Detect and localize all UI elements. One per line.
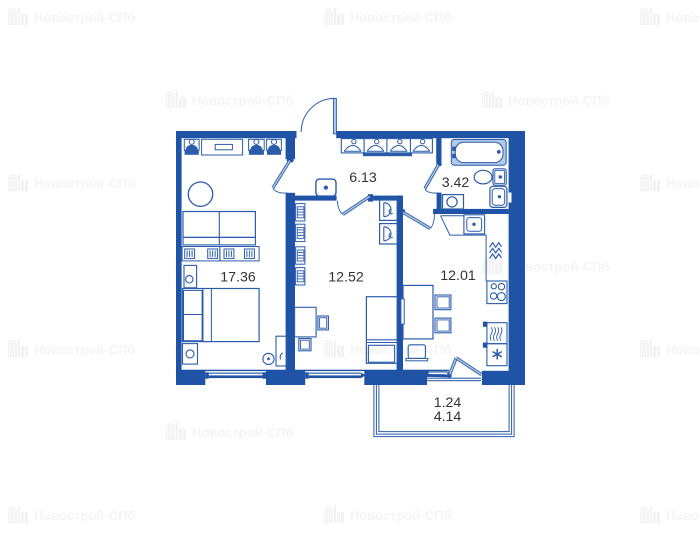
svg-text:Новострой-СПб: Новострой-СПб [34, 10, 135, 25]
svg-text:Новострой-СПб: Новострой-СПб [34, 508, 135, 523]
svg-text:12.01: 12.01 [440, 268, 476, 284]
svg-text:Новострой-СПб: Новострой-СПб [666, 342, 700, 357]
svg-text:Новострой-СПб: Новострой-СПб [34, 176, 135, 191]
svg-text:4.14: 4.14 [434, 409, 462, 425]
svg-text:Новострой-СПб: Новострой-СПб [192, 425, 293, 440]
svg-text:Новострой-СПб: Новострой-СПб [350, 508, 451, 523]
svg-text:6.13: 6.13 [349, 170, 377, 186]
svg-text:12.52: 12.52 [328, 270, 364, 286]
svg-text:17.36: 17.36 [220, 270, 256, 286]
svg-text:Новострой-СПб: Новострой-СПб [666, 10, 700, 25]
svg-text:Новострой-СПб: Новострой-СПб [666, 508, 700, 523]
svg-text:3.42: 3.42 [442, 175, 470, 191]
svg-text:Новострой-СПб: Новострой-СПб [192, 93, 293, 108]
svg-text:Новострой-СПб: Новострой-СПб [34, 342, 135, 357]
svg-text:Новострой-СПб: Новострой-СПб [350, 10, 451, 25]
svg-text:Новострой-СПб: Новострой-СПб [666, 176, 700, 191]
svg-text:Новострой-СПб: Новострой-СПб [508, 93, 609, 108]
